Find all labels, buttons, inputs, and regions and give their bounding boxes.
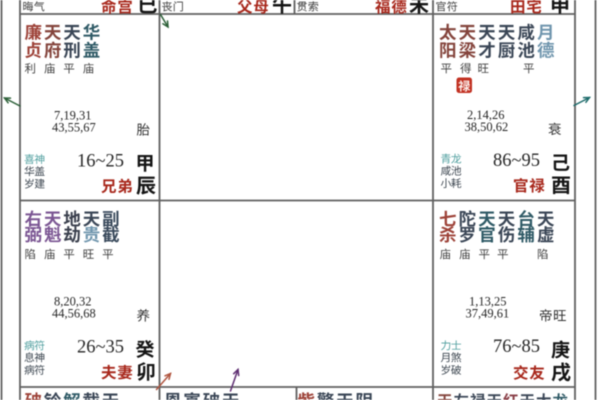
svg-text:16~25: 16~25 — [77, 152, 124, 172]
svg-text:37,49,61: 37,49,61 — [466, 307, 510, 321]
svg-text:26~35: 26~35 — [77, 338, 124, 358]
svg-text:86~95: 86~95 — [493, 151, 540, 171]
svg-text:38,50,62: 38,50,62 — [465, 120, 509, 134]
svg-text:44,56,68: 44,56,68 — [52, 307, 96, 321]
svg-text:43,55,67: 43,55,67 — [52, 121, 96, 135]
svg-text:76~85: 76~85 — [493, 337, 540, 357]
